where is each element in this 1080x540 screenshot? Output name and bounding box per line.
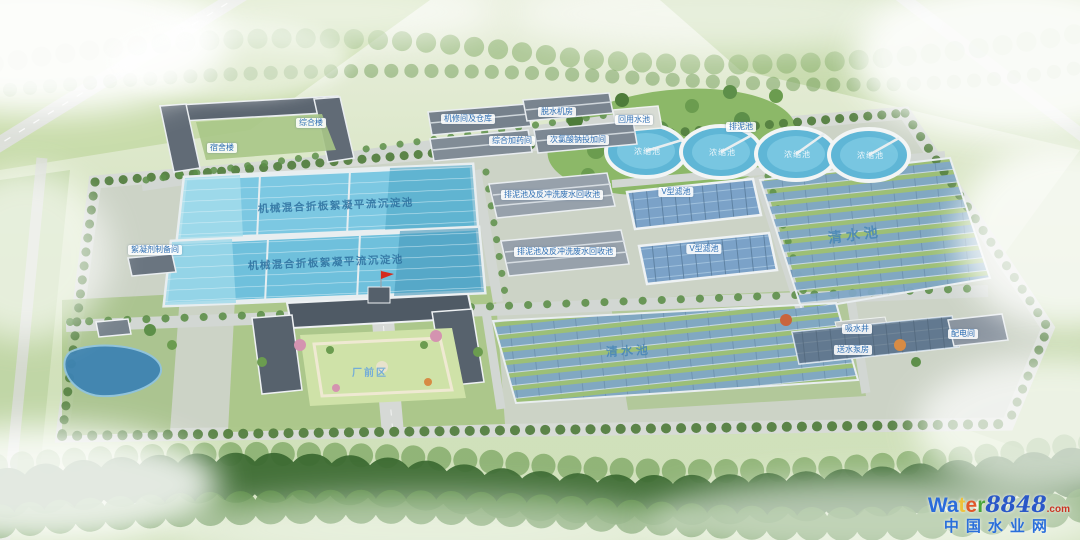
building-label-office: 综合楼 [296,118,326,128]
thickener1-label: 浓缩池 [634,146,661,156]
building-label-intake-well: 吸水井 [842,324,872,334]
watermark-letter: e [966,494,978,517]
watermark-number: 8848 [985,492,1046,518]
building-label-dosing: 综合加药间 [489,136,535,146]
sedimentation-basins: 机械混合折板絮凝平流沉淀池 机械混合折板絮凝平流沉淀池 [165,165,484,305]
thickener2-label: 浓缩池 [709,147,736,157]
clearwater-bottom-label: 清水池 [606,342,652,359]
front-area-label: 厂前区 [352,366,388,379]
building-label-sludge-tank: 排泥池 [726,122,756,132]
watermark-letter: W [928,494,947,517]
building-label-power-room: 配电间 [948,329,978,339]
building-label-dewatering: 脱水机房 [538,107,576,117]
watermark: Water8848.com 中国水业网 [928,494,1070,534]
building-label-repair-warehouse: 机修间及仓库 [441,114,495,124]
building-label-reuse-tank: 回用水池 [615,115,653,125]
building-label-flocculant: 絮凝剂制备间 [128,245,182,255]
building-label-v-filter-1: V型滤池 [658,187,693,197]
watermark-letter: t [959,494,966,517]
building-label-dormitory: 宿舍楼 [207,143,237,153]
building-label-backwash-2: 排泥池及反冲洗废水回收池 [514,247,616,257]
scene-canvas: 机械混合折板絮凝平流沉淀池 机械混合折板絮凝平流沉淀池 清水池 清水池 浓缩池 … [0,0,1080,540]
building-label-pump-house: 送水泵房 [834,345,872,355]
building-label-backwash-1: 排泥池及反冲洗废水回收池 [501,190,603,200]
building-label-v-filter-2: V型滤池 [686,244,721,254]
watermark-logo: Water8848.com [928,494,1070,516]
building-label-hypochlorite: 次氯酸钠投加间 [547,135,609,145]
watermark-domain: .com [1047,504,1070,515]
watermark-site-name: 中国水业网 [928,519,1070,534]
thickener4-label: 浓缩池 [857,150,884,160]
thickener3-label: 浓缩池 [784,149,811,159]
watermark-letter: a [947,494,959,517]
aerial-rendering-water-plant: 机械混合折板絮凝平流沉淀池 机械混合折板絮凝平流沉淀池 清水池 清水池 浓缩池 … [0,0,1080,540]
